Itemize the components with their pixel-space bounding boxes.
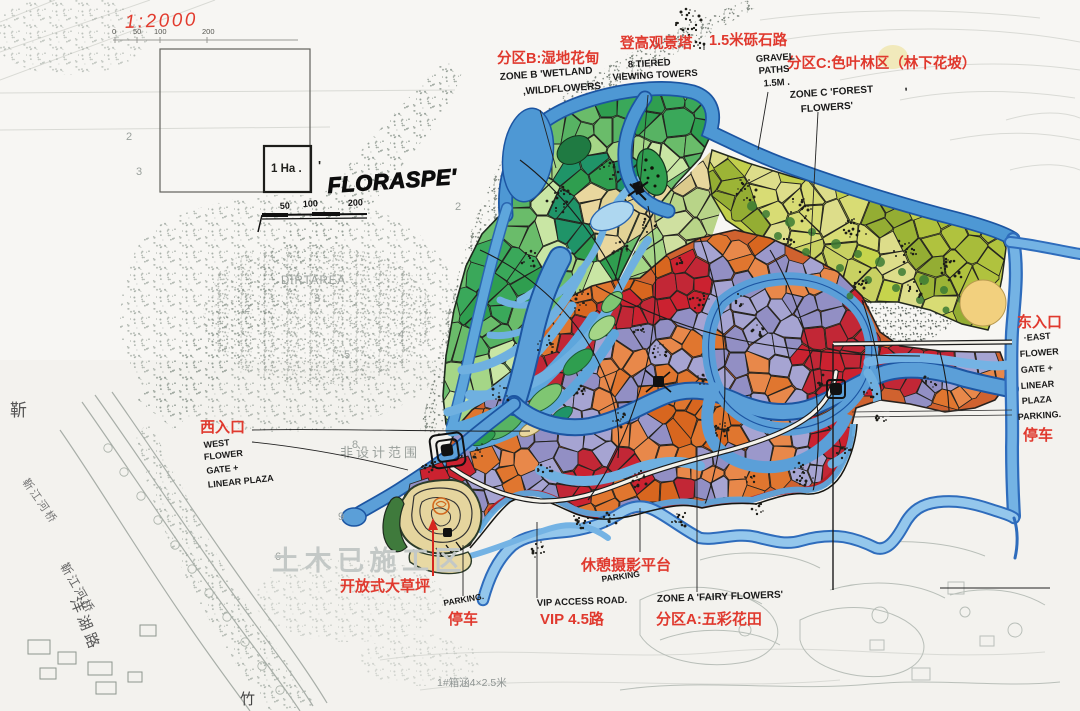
svg-text:0: 0: [112, 27, 116, 36]
svg-text:2: 2: [244, 303, 250, 315]
svg-text:': ': [318, 158, 321, 173]
svg-text:5: 5: [344, 349, 350, 361]
svg-text:50: 50: [280, 200, 291, 211]
svg-text:分区C:色叶林区（林下花坡）: 分区C:色叶林区（林下花坡）: [787, 54, 976, 72]
svg-text:西入口: 西入口: [200, 419, 245, 436]
svg-text:1 Ha .: 1 Ha .: [271, 163, 302, 175]
svg-text:开放式大草坪: 开放式大草坪: [340, 577, 430, 595]
svg-text:2: 2: [126, 131, 132, 143]
svg-text:VIP 4.5路: VIP 4.5路: [540, 610, 605, 628]
svg-text:土木已施工区: 土木已施工区: [272, 546, 467, 576]
svg-text:靳: 靳: [10, 401, 27, 420]
svg-text:100: 100: [303, 198, 319, 209]
svg-text:9: 9: [338, 511, 344, 523]
svg-text:东入口: 东入口: [1017, 313, 1062, 331]
svg-text:3: 3: [136, 166, 142, 178]
svg-text:4: 4: [398, 329, 404, 341]
svg-text:PATHS: PATHS: [758, 64, 789, 77]
svg-text:分区A:五彩花田: 分区A:五彩花田: [656, 610, 762, 628]
svg-text:8 TIERED: 8 TIERED: [628, 57, 671, 70]
svg-text:200: 200: [348, 197, 364, 208]
svg-text:竹: 竹: [240, 691, 255, 708]
svg-text:1#箱涵4×2.5米: 1#箱涵4×2.5米: [437, 676, 507, 689]
svg-text:停车: 停车: [1023, 426, 1053, 444]
svg-text:2: 2: [455, 201, 461, 213]
svg-text:停车: 停车: [448, 610, 478, 628]
svg-text:200: 200: [202, 27, 215, 36]
svg-text:1.5M .: 1.5M .: [763, 77, 790, 90]
svg-text:1.5米砾石路: 1.5米砾石路: [709, 31, 788, 49]
svg-text:100: 100: [154, 27, 167, 36]
svg-text:50: 50: [133, 27, 141, 36]
svg-text:DIRTAREA: DIRTAREA: [281, 275, 346, 287]
svg-text:3: 3: [314, 293, 320, 305]
svg-text:分区B:湿地花甸: 分区B:湿地花甸: [497, 49, 599, 67]
svg-text:登高观景塔: 登高观景塔: [619, 34, 693, 52]
svg-text:PLAZA: PLAZA: [1021, 394, 1052, 406]
